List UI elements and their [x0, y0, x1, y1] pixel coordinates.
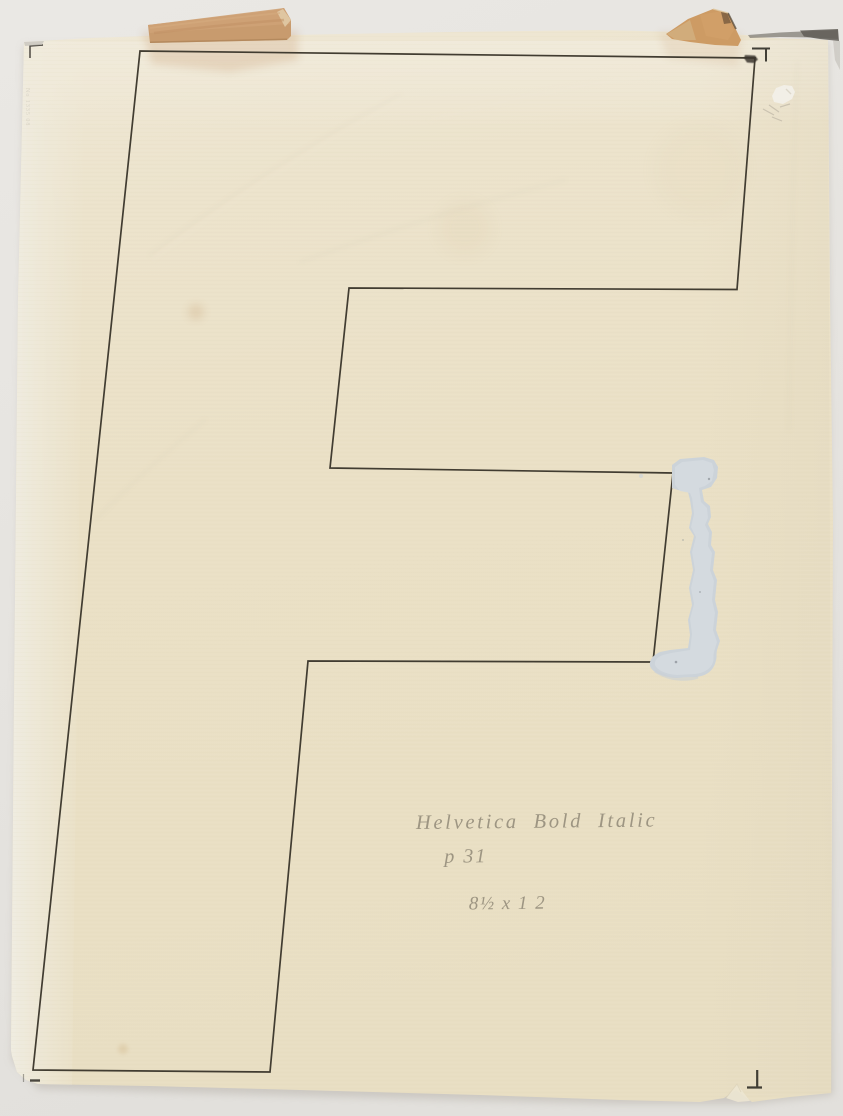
svg-text:p 31: p 31 — [442, 845, 487, 867]
svg-text:No 1335 08: No 1335 08 — [24, 88, 30, 126]
svg-text:8½ x 1 2: 8½ x 1 2 — [469, 893, 547, 915]
svg-text:Helvetica Bold Italic: Helvetica Bold Italic — [415, 810, 658, 835]
